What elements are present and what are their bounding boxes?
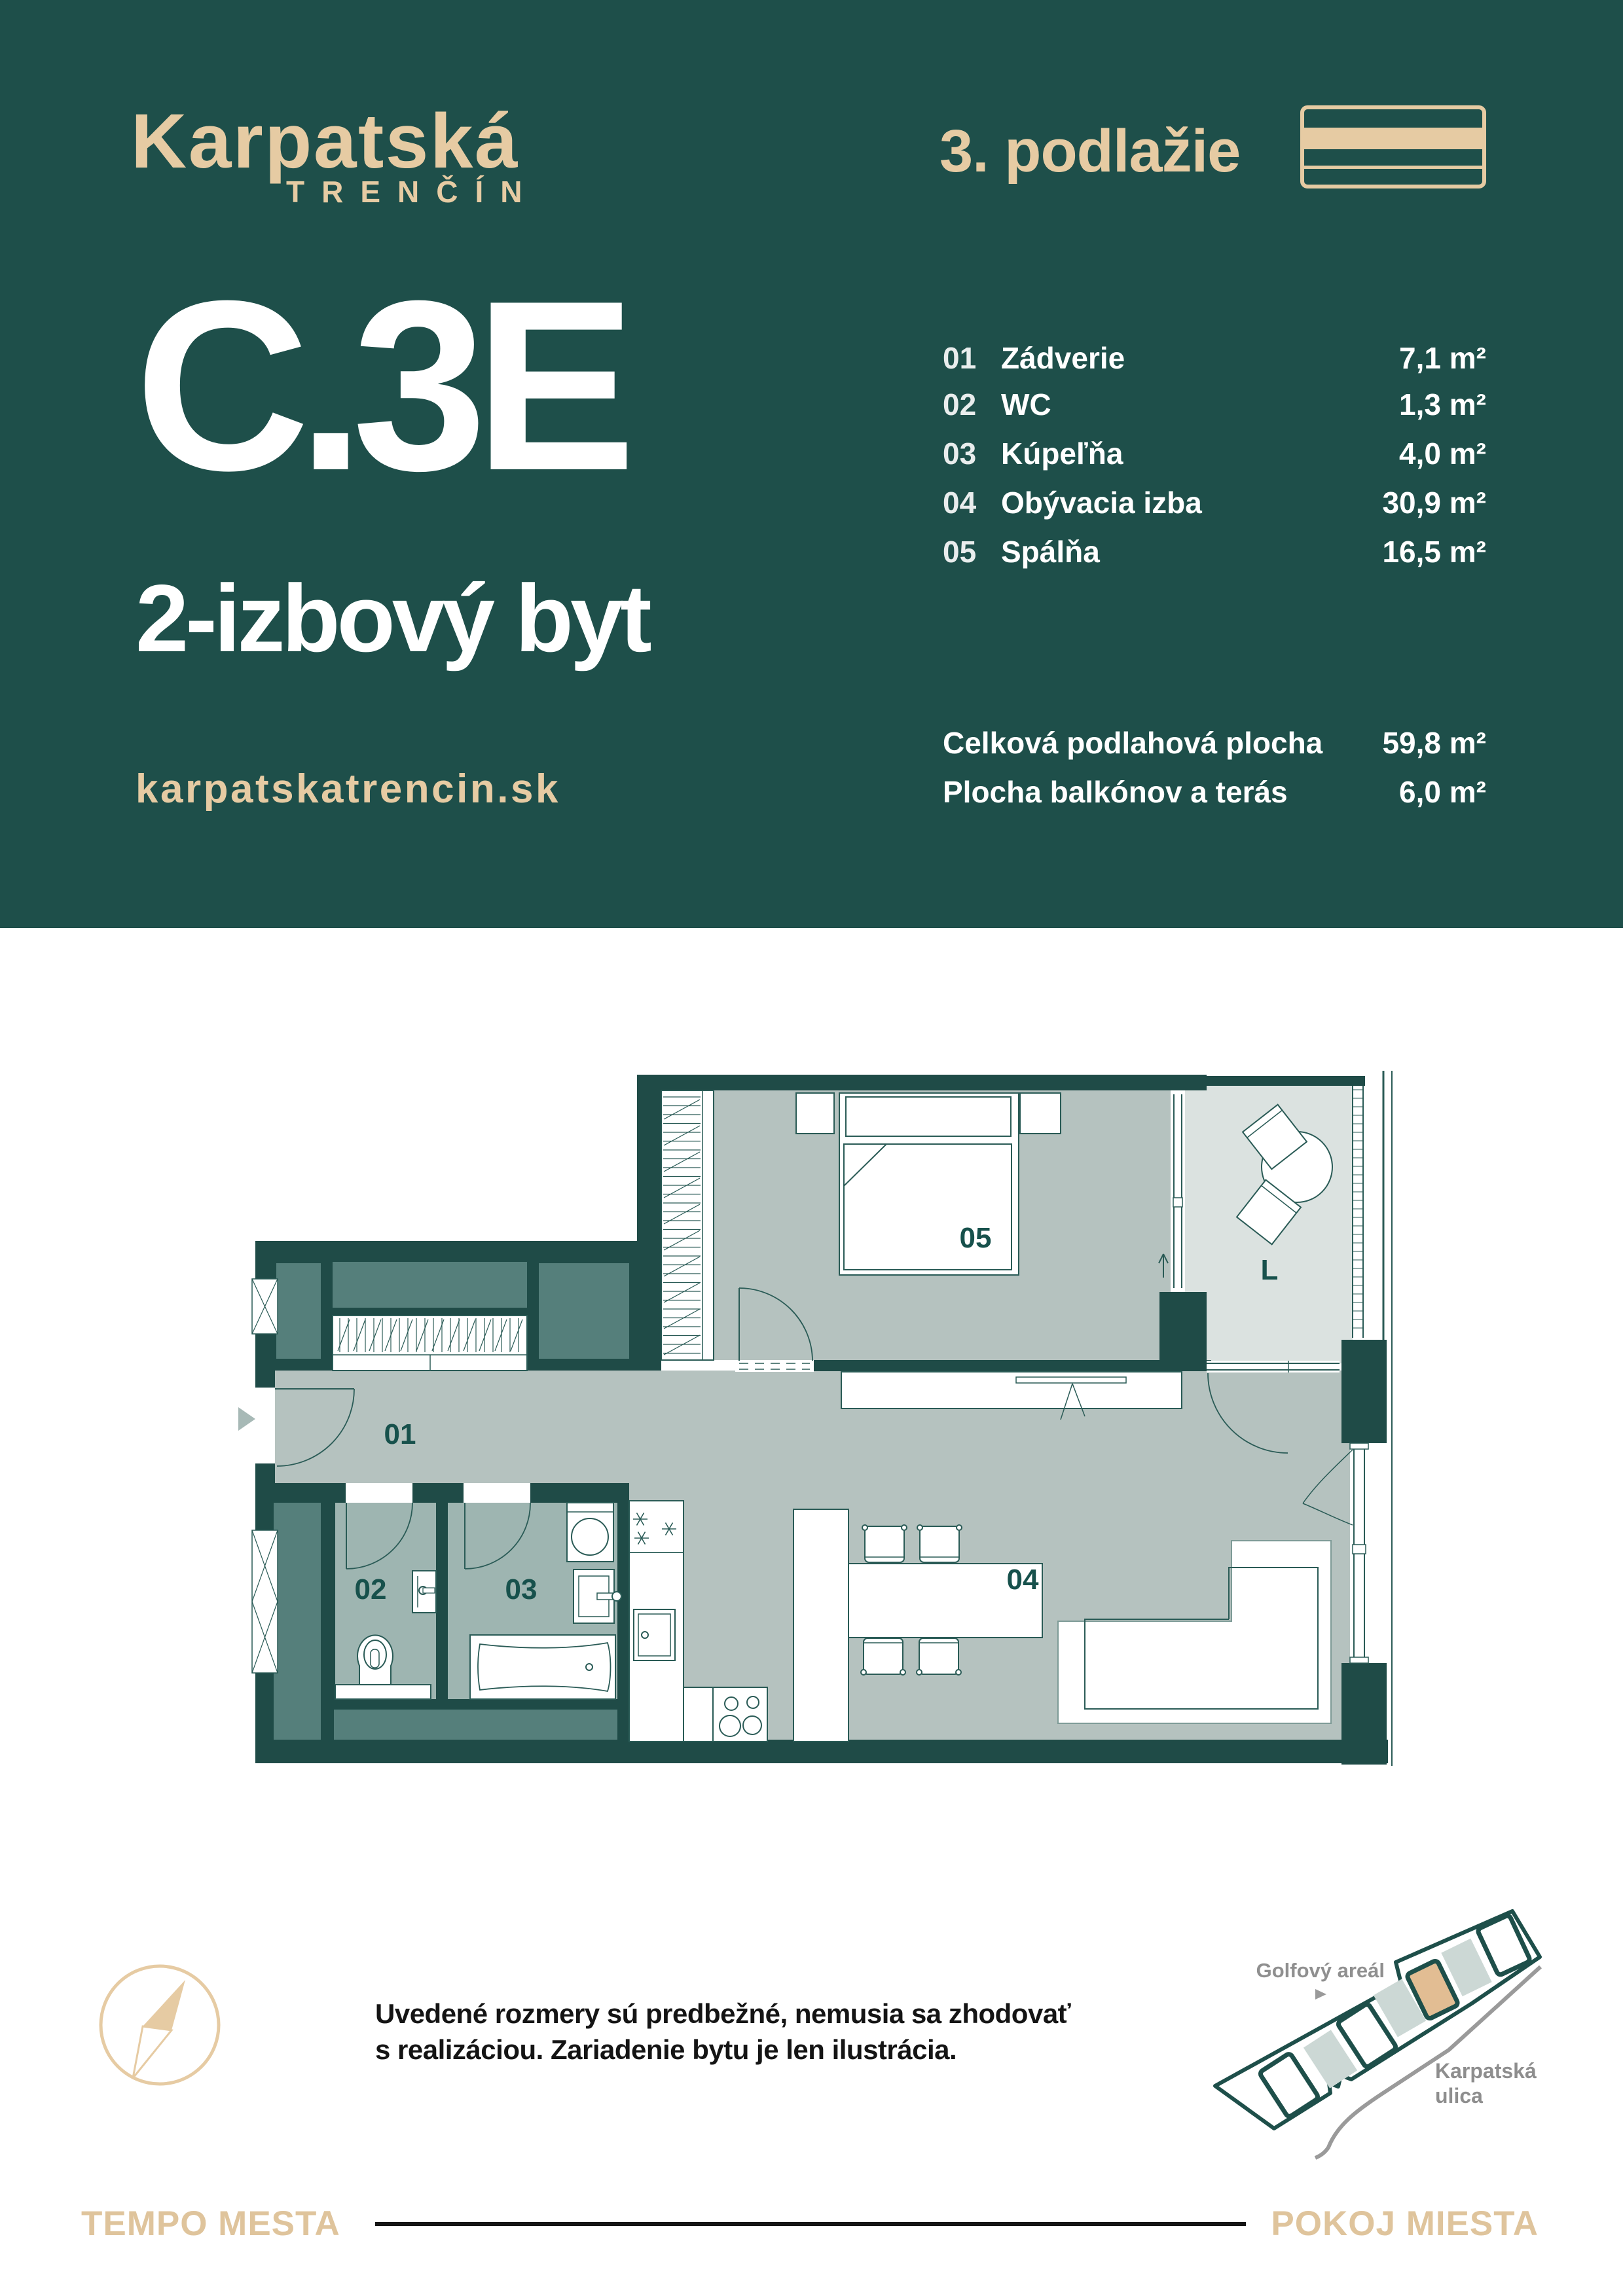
svg-text:L: L (1261, 1254, 1279, 1286)
svg-text:02: 02 (355, 1573, 387, 1605)
svg-text:04: 04 (1007, 1564, 1039, 1596)
svg-text:01: 01 (384, 1418, 416, 1450)
svg-text:03: 03 (505, 1573, 538, 1605)
svg-text:05: 05 (960, 1222, 992, 1254)
